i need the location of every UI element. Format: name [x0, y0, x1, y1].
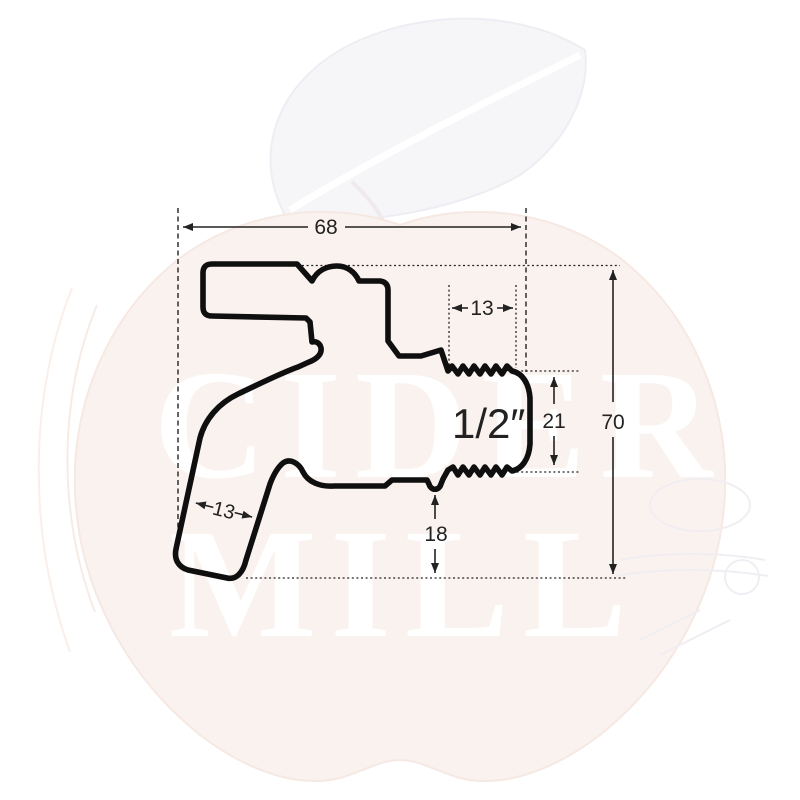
dim-label-outlet-clearance: 18 — [424, 523, 447, 546]
dim-overall-width: 68 — [183, 216, 521, 239]
faucet-diagram: 68 13 21 70 18 13 — [0, 0, 800, 800]
dim-label-overall-width: 68 — [314, 216, 337, 239]
dim-overall-height: 70 — [601, 270, 624, 574]
dim-label-overall-height: 70 — [601, 411, 624, 434]
dim-label-thread-diameter: 21 — [542, 410, 565, 433]
connection-size-label: 1/2″ — [452, 400, 525, 447]
dim-spout-diameter: 13 — [193, 493, 255, 528]
dim-outlet-clearance: 18 — [424, 495, 447, 573]
drawing-canvas: CIDER MILL 68 — [0, 0, 800, 800]
dim-thread-length: 13 — [452, 297, 513, 320]
dim-arrow-left — [196, 503, 213, 507]
dim-label-spout-diameter: 13 — [210, 498, 237, 525]
dim-thread-diameter: 21 — [542, 377, 565, 465]
dim-arrow-right — [235, 513, 252, 517]
dim-label-thread-length: 13 — [470, 297, 493, 320]
